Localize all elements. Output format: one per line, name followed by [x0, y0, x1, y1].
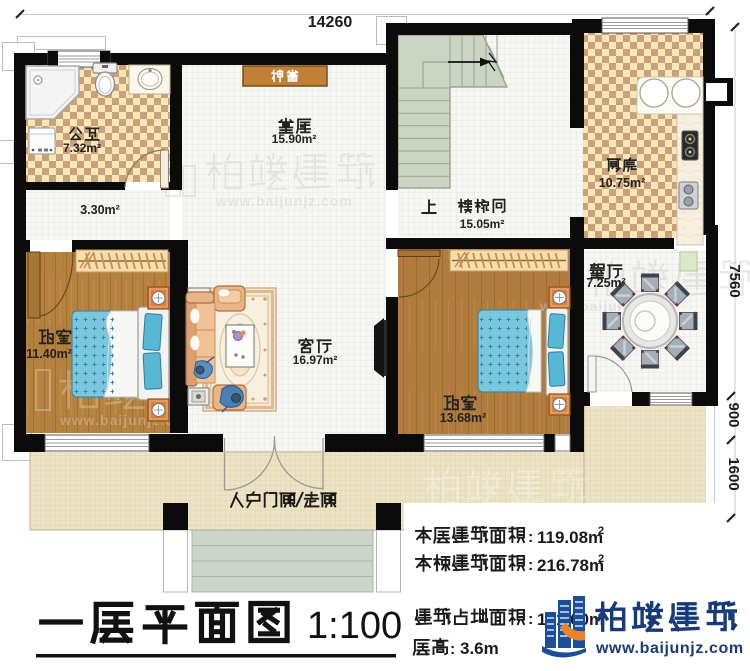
svg-text:2: 2 [598, 553, 604, 565]
svg-text:3.30m²: 3.30m² [80, 203, 120, 217]
svg-text:www.baijunjz.com: www.baijunjz.com [595, 640, 744, 657]
svg-text:2: 2 [598, 525, 604, 537]
svg-text:15.05m²: 15.05m² [460, 217, 505, 231]
svg-text::: : [528, 557, 533, 574]
svg-text::: : [450, 641, 455, 658]
svg-text:7560: 7560 [726, 264, 743, 297]
svg-text:119.08m: 119.08m [537, 528, 603, 547]
svg-text:900: 900 [725, 402, 742, 427]
svg-text:216.78m: 216.78m [537, 556, 604, 575]
svg-text:11.40m²: 11.40m² [26, 347, 72, 361]
svg-text:7.32m²: 7.32m² [63, 141, 101, 155]
svg-text:1:100: 1:100 [307, 605, 402, 647]
svg-text:7.25m²: 7.25m² [586, 276, 626, 290]
svg-text:10.75m²: 10.75m² [599, 176, 646, 190]
svg-text:www.baijunjz.com: www.baijunjz.com [215, 193, 353, 209]
svg-text:3.6m: 3.6m [460, 639, 499, 658]
svg-text:15.90m²: 15.90m² [272, 132, 317, 146]
svg-text::: : [528, 611, 533, 628]
svg-text:16.97m²: 16.97m² [293, 353, 338, 367]
svg-text::: : [528, 529, 533, 546]
svg-text:14260: 14260 [308, 14, 353, 31]
svg-text:13.68m²: 13.68m² [440, 411, 487, 425]
svg-text:1600: 1600 [725, 457, 742, 490]
